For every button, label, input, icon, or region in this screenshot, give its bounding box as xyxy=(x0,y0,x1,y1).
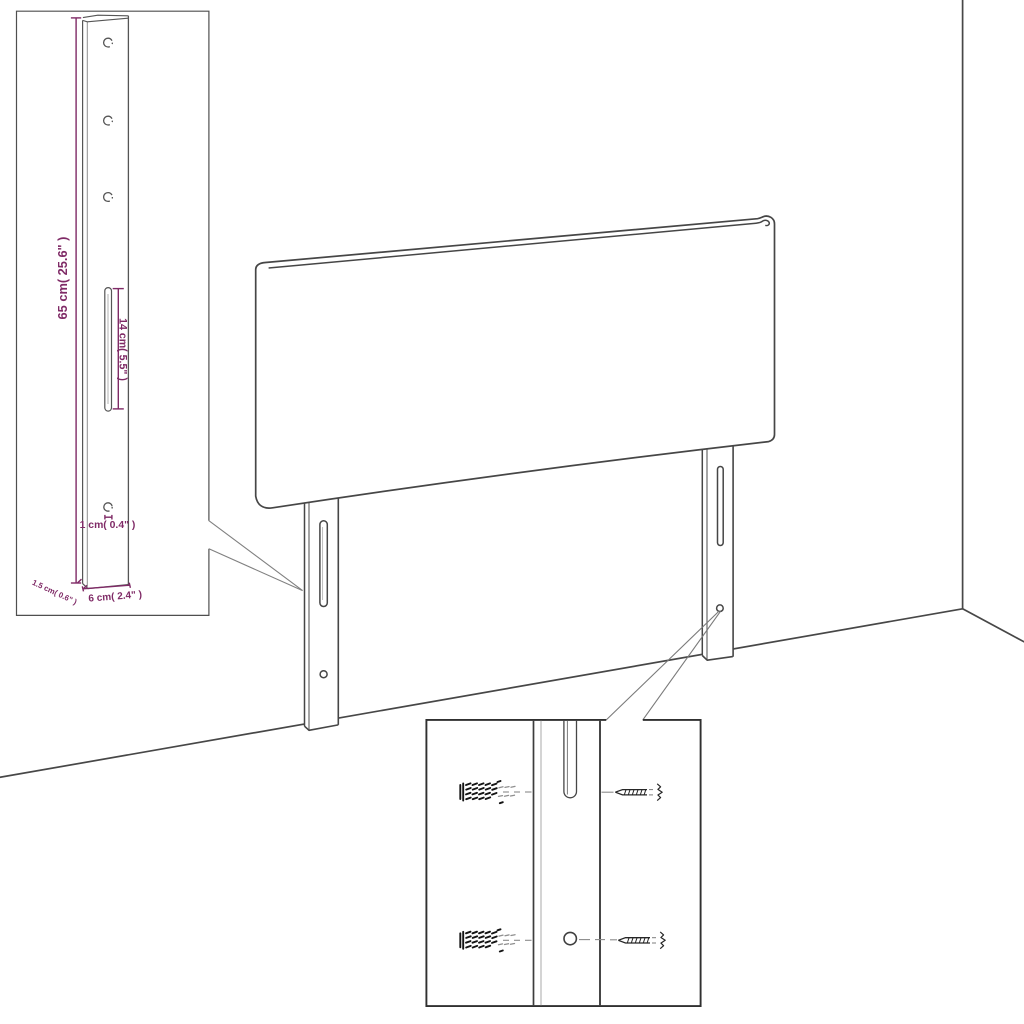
svg-text:65 cm( 25.6" ): 65 cm( 25.6" ) xyxy=(55,237,70,320)
svg-text:1 cm( 0.4" ): 1 cm( 0.4" ) xyxy=(80,520,136,531)
svg-text:14 cm( 5.5" ): 14 cm( 5.5" ) xyxy=(117,318,129,381)
